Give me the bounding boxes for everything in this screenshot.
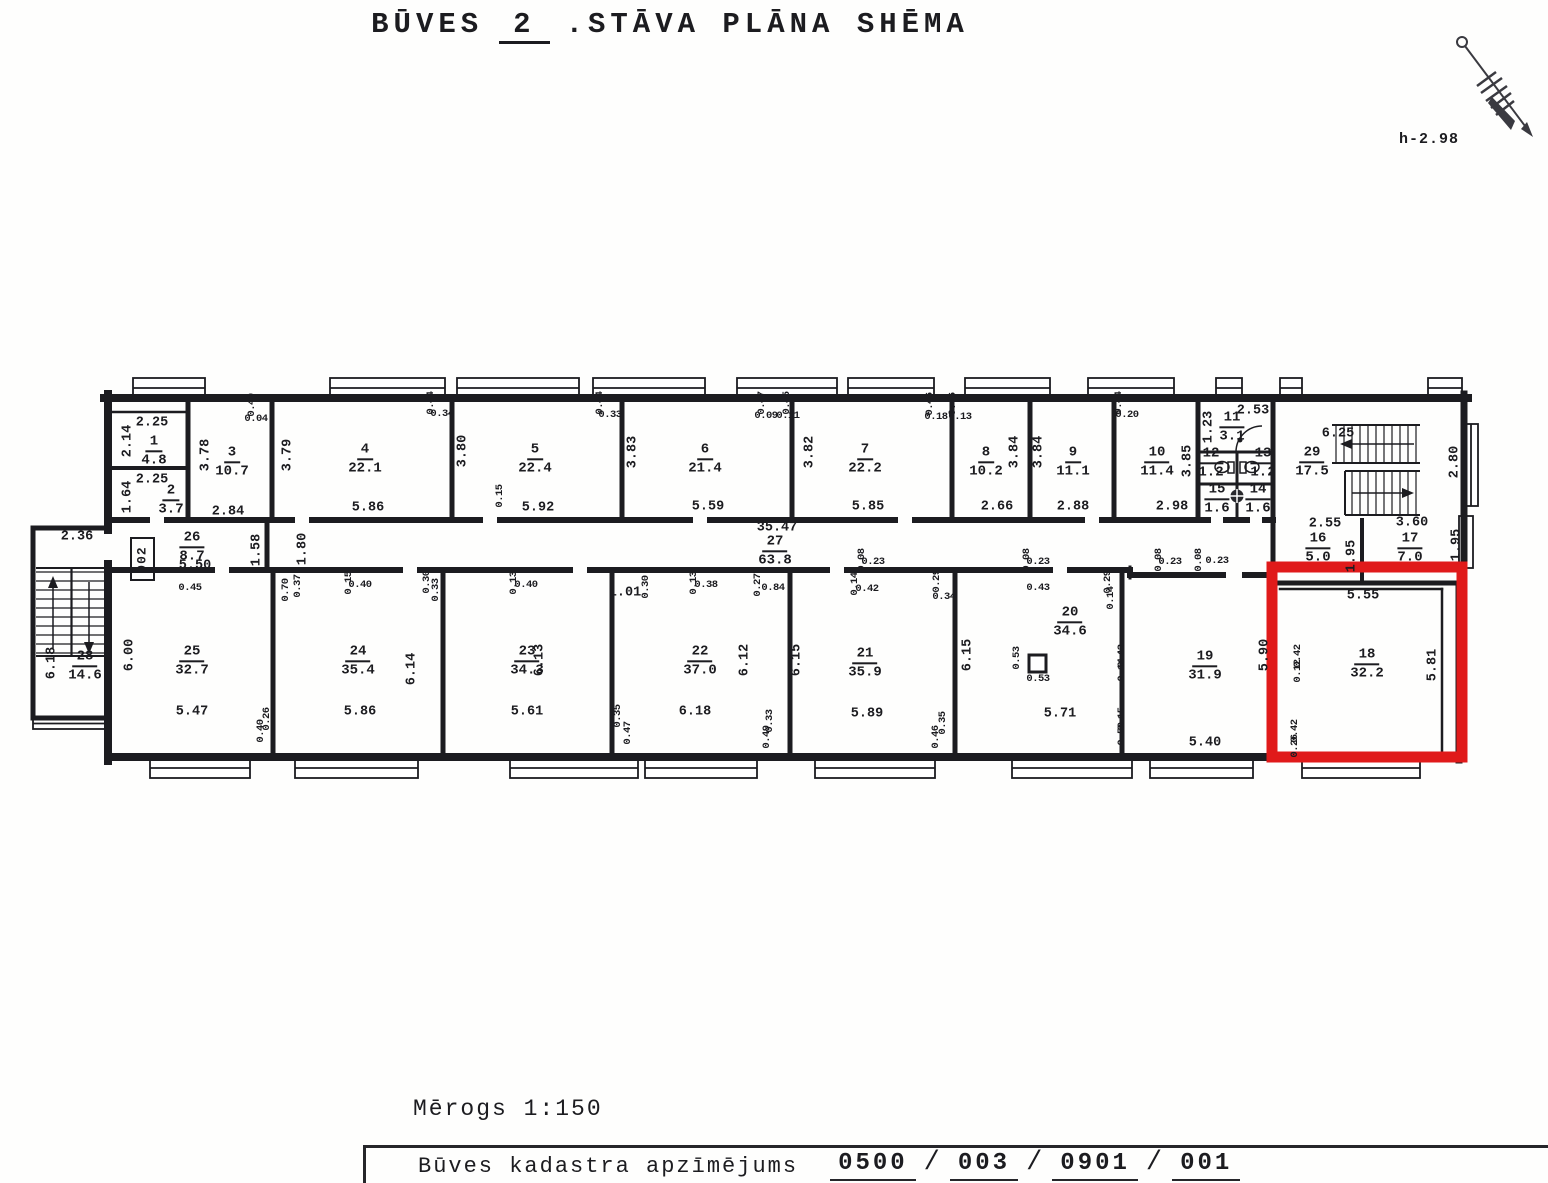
room-label-5: 522.4: [518, 442, 552, 475]
dim-label: 5.85: [852, 500, 884, 514]
room-label-16: 165.0: [1305, 531, 1330, 564]
dim-label: 0.13: [689, 571, 700, 594]
room-label-20: 2034.6: [1053, 605, 1087, 638]
room-label-25: 2532.7: [175, 644, 209, 677]
dim-label: 2.84: [212, 505, 244, 519]
dim-label: 5.92: [522, 501, 554, 515]
room-label-17: 177.0: [1397, 531, 1422, 564]
dim-label: 6.15: [961, 639, 975, 671]
dim-label: 3.79: [281, 439, 295, 471]
dim-label: 2.88: [1057, 500, 1089, 514]
cadastre-number: 0500 / 003 / 0901 / 001: [830, 1148, 1240, 1183]
stairs-left: [36, 568, 107, 656]
dim-label: 0.37: [293, 574, 304, 597]
room-label-24: 2435.4: [341, 644, 375, 677]
building-height-label: h-2.98: [1399, 131, 1459, 148]
dim-label: 2.36: [61, 530, 93, 544]
dim-label: 3.60: [1396, 516, 1428, 530]
scale-label: Mērogs 1:150: [413, 1096, 603, 1122]
dim-label: 0.26: [1290, 734, 1301, 757]
title-prefix: BŪVES: [371, 8, 483, 41]
dim-label: 0.33: [431, 578, 442, 601]
dim-label: 0.45: [178, 583, 201, 594]
dim-label: 0.53: [1012, 646, 1023, 669]
dim-label: 6.13: [533, 644, 547, 676]
dim-label: 6.15: [790, 644, 804, 676]
dim-label: 5.61: [511, 705, 543, 719]
dim-label: 0.08: [857, 548, 868, 571]
dim-label: 0.40: [247, 393, 258, 416]
cadastre-part-1: 0500: [830, 1150, 916, 1181]
dim-label: 0.43: [1026, 583, 1049, 594]
dim-label: 1.64: [121, 481, 135, 513]
door-plate-text: 002: [135, 546, 150, 572]
room-label-15: 151.6: [1204, 482, 1229, 515]
dim-label: 0.44: [1114, 391, 1125, 414]
dim-label: 6.14: [405, 653, 419, 685]
cadastre-separator: /: [1146, 1148, 1164, 1178]
dim-label: 0.23: [1205, 556, 1228, 567]
dim-label: 2.80: [1448, 446, 1462, 478]
dim-label: 1.01: [609, 586, 641, 600]
room-label-9: 911.1: [1056, 445, 1090, 478]
page-title: BŪVES 2 .STĀVA PLĀNA SHĒMA: [0, 8, 1340, 44]
dim-label: 5.81: [1426, 649, 1440, 681]
room-label-14: 141.6: [1245, 482, 1270, 515]
dim-label: 6.25: [1322, 427, 1354, 441]
dim-label: 2.53: [1237, 404, 1269, 418]
dim-label: 0.46: [925, 392, 936, 415]
dim-label: 3.78: [199, 439, 213, 471]
dim-label: 6.18: [679, 705, 711, 719]
dim-label: 2.25: [136, 416, 168, 430]
dim-label: 0.46: [948, 392, 959, 415]
dim-label: 0.13: [509, 571, 520, 594]
dim-label: 0.27: [753, 573, 764, 596]
room-label-18: 1832.2: [1350, 647, 1384, 680]
dim-label: 0.46: [931, 725, 942, 748]
dim-label: 2.14: [121, 425, 135, 457]
dim-label: 6.00: [123, 639, 137, 671]
north-arrow-icon: [1457, 37, 1533, 137]
cadastre-part-4: 001: [1172, 1150, 1240, 1181]
room-label-3: 310.7: [215, 445, 249, 478]
dim-label: 5.55: [1347, 589, 1379, 603]
room-label-7: 722.2: [848, 442, 882, 475]
room-label-29: 2917.5: [1295, 445, 1329, 478]
dim-label: 1.95: [1450, 529, 1464, 561]
dim-label: 3.80: [456, 435, 470, 467]
dim-label: 3.82: [803, 436, 817, 468]
dim-label: 5.71: [1044, 707, 1076, 721]
cadastre-separator: /: [924, 1148, 942, 1178]
room-label-22: 2237.0: [683, 644, 717, 677]
cadastre-label: Būves kadastra apzīmējums: [418, 1154, 798, 1179]
dim-label: 0.14: [1106, 586, 1117, 609]
dim-label: 0.14: [1117, 658, 1128, 681]
door-plate-002: 002: [130, 537, 155, 581]
room-label-1: 14.8: [141, 434, 166, 467]
dim-label: 5.40: [1189, 736, 1221, 750]
dim-label: 1.80: [296, 533, 310, 565]
dim-label: 3.84: [1008, 436, 1022, 468]
dim-label: 0.40: [256, 719, 267, 742]
dim-label: 0.44: [426, 391, 437, 414]
dim-label: 0.30: [641, 575, 652, 598]
title-floor-number: 2: [499, 8, 549, 44]
dim-label: 5.90: [1258, 639, 1272, 671]
room-label-19: 1931.9: [1188, 649, 1222, 682]
dim-label: 0.08: [1022, 548, 1033, 571]
cadastre-strip: Būves kadastra apzīmējums 0500 / 003 / 0…: [363, 1145, 1548, 1183]
cadastre-part-2: 003: [950, 1150, 1018, 1181]
dim-label: 1.23: [1202, 411, 1216, 443]
room-label-27: 2763.8: [758, 534, 792, 567]
room-label-28: 2814.6: [68, 649, 102, 682]
dim-label: 5.59: [692, 500, 724, 514]
title-suffix: .STĀVA PLĀNA SHĒMA: [566, 8, 969, 41]
dim-label: 2.66: [981, 500, 1013, 514]
dim-label: 0.08: [1194, 548, 1205, 571]
dim-label: 0.45: [782, 391, 793, 414]
dim-label: 0.47: [623, 721, 634, 744]
dim-label: 0.50: [1117, 722, 1128, 745]
floor-plan-document: 14.823.7310.7422.1522.4621.4722.2810.291…: [0, 0, 1548, 1183]
dim-label: 2.98: [1156, 500, 1188, 514]
dim-label: 5.86: [352, 501, 384, 515]
room-label-8: 810.2: [969, 445, 1003, 478]
dim-label: 5.89: [851, 707, 883, 721]
room-label-21: 2135.9: [848, 646, 882, 679]
dim-label: 5.50: [179, 559, 211, 573]
dim-label: 3.84: [1032, 436, 1046, 468]
room-label-2: 23.7: [158, 483, 183, 516]
room-label-4: 422.1: [348, 442, 382, 475]
column-symbol: [1029, 655, 1046, 672]
room-label-12: 121.2: [1198, 446, 1223, 479]
dim-label: 0.47: [757, 391, 768, 414]
dim-label: 2.25: [136, 473, 168, 487]
dim-label: 0.12: [1293, 659, 1304, 682]
dim-label: 35.47: [757, 521, 798, 535]
cadastre-part-3: 0901: [1052, 1150, 1138, 1181]
dim-label: 6.18: [45, 647, 59, 679]
dim-label: 0.15: [344, 571, 355, 594]
dim-label: 6.12: [738, 644, 752, 676]
room-label-6: 621.4: [688, 442, 722, 475]
dim-label: 0.14: [850, 572, 861, 595]
dim-label: 5.47: [176, 705, 208, 719]
room-label-10: 1011.4: [1140, 445, 1174, 478]
dim-label: 0.15: [495, 484, 506, 507]
dim-label: 1.95: [1345, 540, 1359, 572]
dim-label: 3.85: [1181, 445, 1195, 477]
dim-label: 0.53: [1026, 674, 1049, 685]
dim-label: 0.08: [1154, 548, 1165, 571]
dim-label: 3.83: [626, 436, 640, 468]
dim-label: 0.44: [595, 391, 606, 414]
dim-label: 0.84: [761, 583, 784, 594]
dim-label: 0.29: [932, 569, 943, 592]
room-label-13: 131.2: [1250, 446, 1275, 479]
dim-label: 0.34: [932, 592, 955, 603]
dim-label: 5.86: [344, 705, 376, 719]
dim-label: 1.58: [250, 534, 264, 566]
dim-label: 2.55: [1309, 517, 1341, 531]
dim-label: 0.70: [281, 578, 292, 601]
dim-label: 0.49: [762, 725, 773, 748]
cadastre-separator: /: [1026, 1148, 1044, 1178]
